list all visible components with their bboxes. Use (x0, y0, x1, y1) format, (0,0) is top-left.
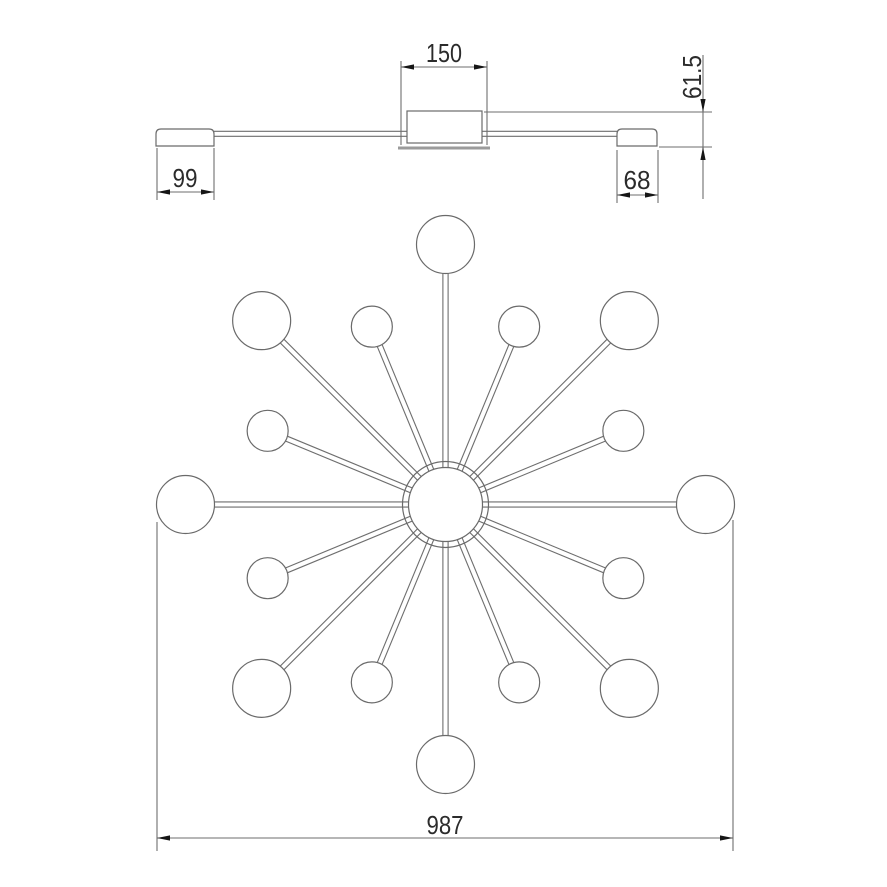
spoke-arm-line (263, 319, 447, 503)
spoke-arm-line (447, 503, 631, 687)
dimension-right-cap: 68 (617, 150, 658, 203)
large-ball (600, 292, 658, 350)
small-ball (603, 410, 644, 451)
large-ball (233, 659, 291, 717)
canopy-box (407, 111, 482, 143)
arrowhead-right (474, 64, 487, 69)
dim-99-label: 99 (173, 163, 198, 193)
small-ball (351, 306, 392, 347)
large-ball (157, 476, 215, 534)
dim-61-5-label: 61.5 (677, 55, 707, 99)
spoke-arm-line (263, 506, 447, 690)
spoke-arm-line (260, 503, 444, 687)
small-ball (499, 662, 540, 703)
small-ball (499, 306, 540, 347)
large-ball (600, 659, 658, 717)
chandelier-dimension-drawing: 150 61.5 99 68 (0, 0, 887, 887)
arrowhead-down (700, 99, 705, 112)
small-ball (247, 558, 288, 599)
small-ball (351, 662, 392, 703)
small-ball (603, 558, 644, 599)
side-elevation (156, 111, 657, 148)
spoke-arm-line (444, 319, 628, 503)
spoke-arm-line (260, 322, 444, 506)
right-end-cap (617, 129, 657, 146)
arrowhead-left (157, 189, 170, 194)
small-ball (247, 410, 288, 451)
large-ball (417, 736, 475, 794)
right-rod (482, 131, 617, 136)
technical-drawing-page: 150 61.5 99 68 (0, 0, 887, 887)
left-rod (214, 131, 407, 136)
left-end-cap (156, 129, 214, 146)
plan-view-starburst (157, 216, 735, 794)
dim-150-label: 150 (426, 38, 462, 68)
large-ball (677, 476, 735, 534)
dimension-fixture-height: 61.5 (484, 55, 712, 199)
dim-68-label: 68 (624, 165, 651, 195)
spoke-arm-line (444, 506, 628, 690)
dimension-left-cap: 99 (157, 148, 214, 200)
large-ball (233, 292, 291, 350)
arrowhead-up (700, 147, 705, 160)
arrowhead-right (201, 189, 214, 194)
hub-inner-circle (409, 468, 483, 542)
large-ball (417, 216, 475, 274)
arrowhead-left (401, 64, 414, 69)
dim-987-label: 987 (427, 810, 464, 840)
arrowhead-right (720, 835, 733, 840)
arrowhead-left (157, 835, 170, 840)
spoke-arm-line (447, 322, 631, 506)
